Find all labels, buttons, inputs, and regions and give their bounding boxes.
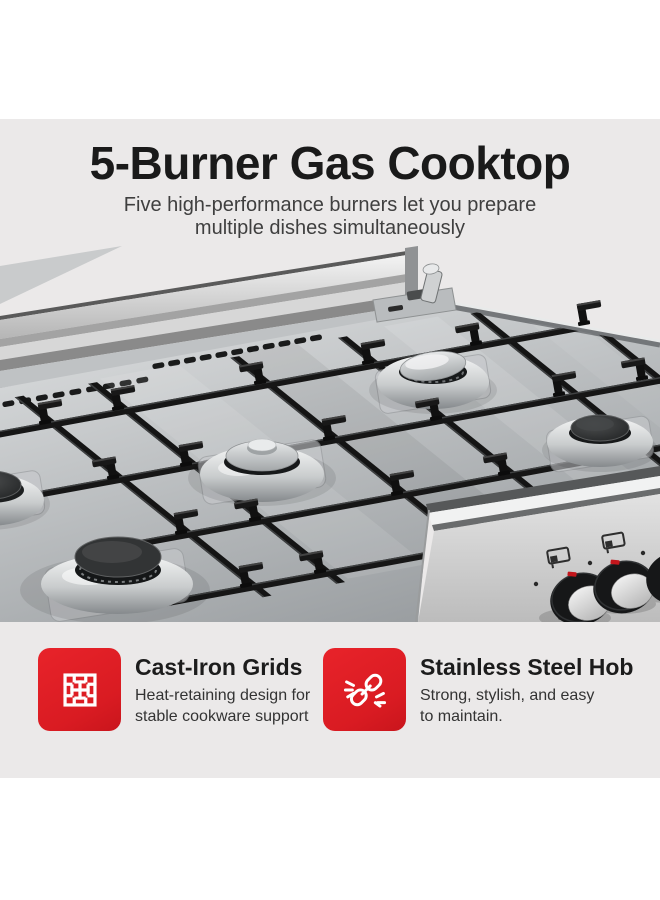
feature-desc-2-line-1: Strong, stylish, and easy — [420, 687, 594, 704]
page-title: 5-Burner Gas Cooktop — [0, 136, 660, 190]
cooktop-image — [0, 242, 660, 622]
feature-title-2: Stainless Steel Hob — [420, 654, 633, 680]
feature-icon-box-2 — [323, 648, 406, 731]
feature-text-2: Stainless Steel Hob Strong, stylish, and… — [420, 648, 633, 727]
feature-desc-2-line-2: to maintain. — [420, 708, 503, 725]
feature-desc-1: Heat-retaining design for stable cookwar… — [135, 685, 310, 727]
feature-desc-1-line-2: stable cookware support — [135, 708, 308, 725]
feature-desc-1-line-1: Heat-retaining design for — [135, 687, 310, 704]
feature-text-1: Cast-Iron Grids Heat-retaining design fo… — [135, 648, 310, 727]
subtitle-line-2: multiple dishes simultaneously — [195, 217, 465, 239]
product-banner: 5-Burner Gas Cooktop Five high-performan… — [0, 0, 660, 900]
feature-title-1: Cast-Iron Grids — [135, 654, 310, 680]
feature-stainless-steel-hob: Stainless Steel Hob Strong, stylish, and… — [323, 648, 633, 731]
cooktop-render — [0, 242, 660, 622]
chain-link-icon — [342, 667, 388, 713]
feature-icon-box-1 — [38, 648, 121, 731]
grate-icon — [57, 667, 103, 713]
feature-desc-2: Strong, stylish, and easy to maintain. — [420, 685, 633, 727]
subtitle-line-1: Five high-performance burners let you pr… — [124, 194, 536, 216]
backsplash-top-slab — [0, 246, 122, 304]
page-subtitle: Five high-performance burners let you pr… — [0, 194, 660, 240]
feature-cast-iron-grids: Cast-Iron Grids Heat-retaining design fo… — [38, 648, 310, 731]
